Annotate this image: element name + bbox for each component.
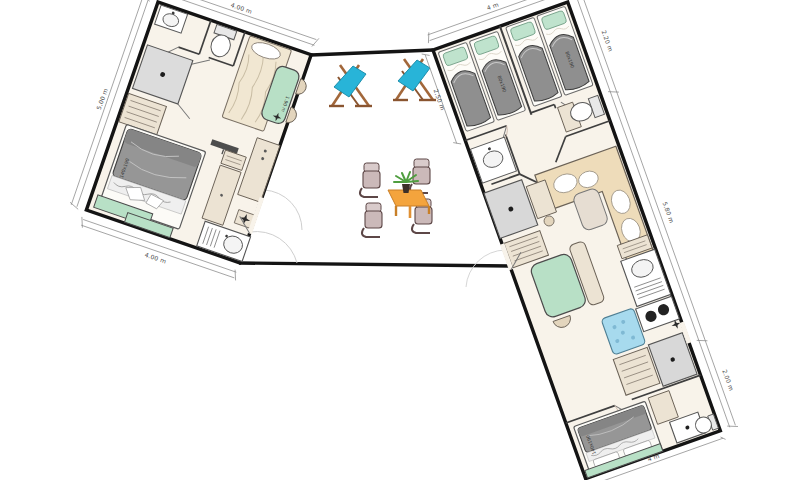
floor-plan-canvas: 4.00 m 5.00 m 4.00 m 1.90 m 140x190 80x1…: [0, 0, 796, 480]
dim-label: 5.00 m: [95, 87, 109, 110]
deck-chair-icon: [393, 59, 436, 100]
terrace-bottom-wall: [239, 263, 510, 266]
dim-label: 2.20 m: [601, 29, 615, 52]
dim-label: 4 m: [486, 1, 500, 12]
door-swing-arc: [466, 250, 505, 287]
garden-chair-icon: [362, 203, 382, 237]
dim-label: 4.00 m: [230, 1, 253, 15]
garden-table-set: [360, 159, 432, 237]
right-unit: 80x190 80x190: [411, 0, 750, 480]
deck-chair-icon: [329, 65, 372, 106]
terrace-top-wall: [311, 50, 433, 55]
left-unit-outline: [86, 2, 311, 263]
dim-label: 4.00 m: [144, 251, 167, 265]
left-unit: 4.00 m 5.00 m 4.00 m 1.90 m 140x190: [54, 0, 325, 289]
door-swing-arc: [250, 232, 297, 263]
door-swing-arc: [264, 190, 302, 230]
floor-plan-svg: 4.00 m 5.00 m 4.00 m 1.90 m 140x190 80x1…: [0, 0, 796, 480]
dim-label: 2.00 m: [721, 368, 735, 391]
dim-label: 5.80 m: [662, 201, 676, 224]
garden-chair-icon: [360, 163, 380, 197]
